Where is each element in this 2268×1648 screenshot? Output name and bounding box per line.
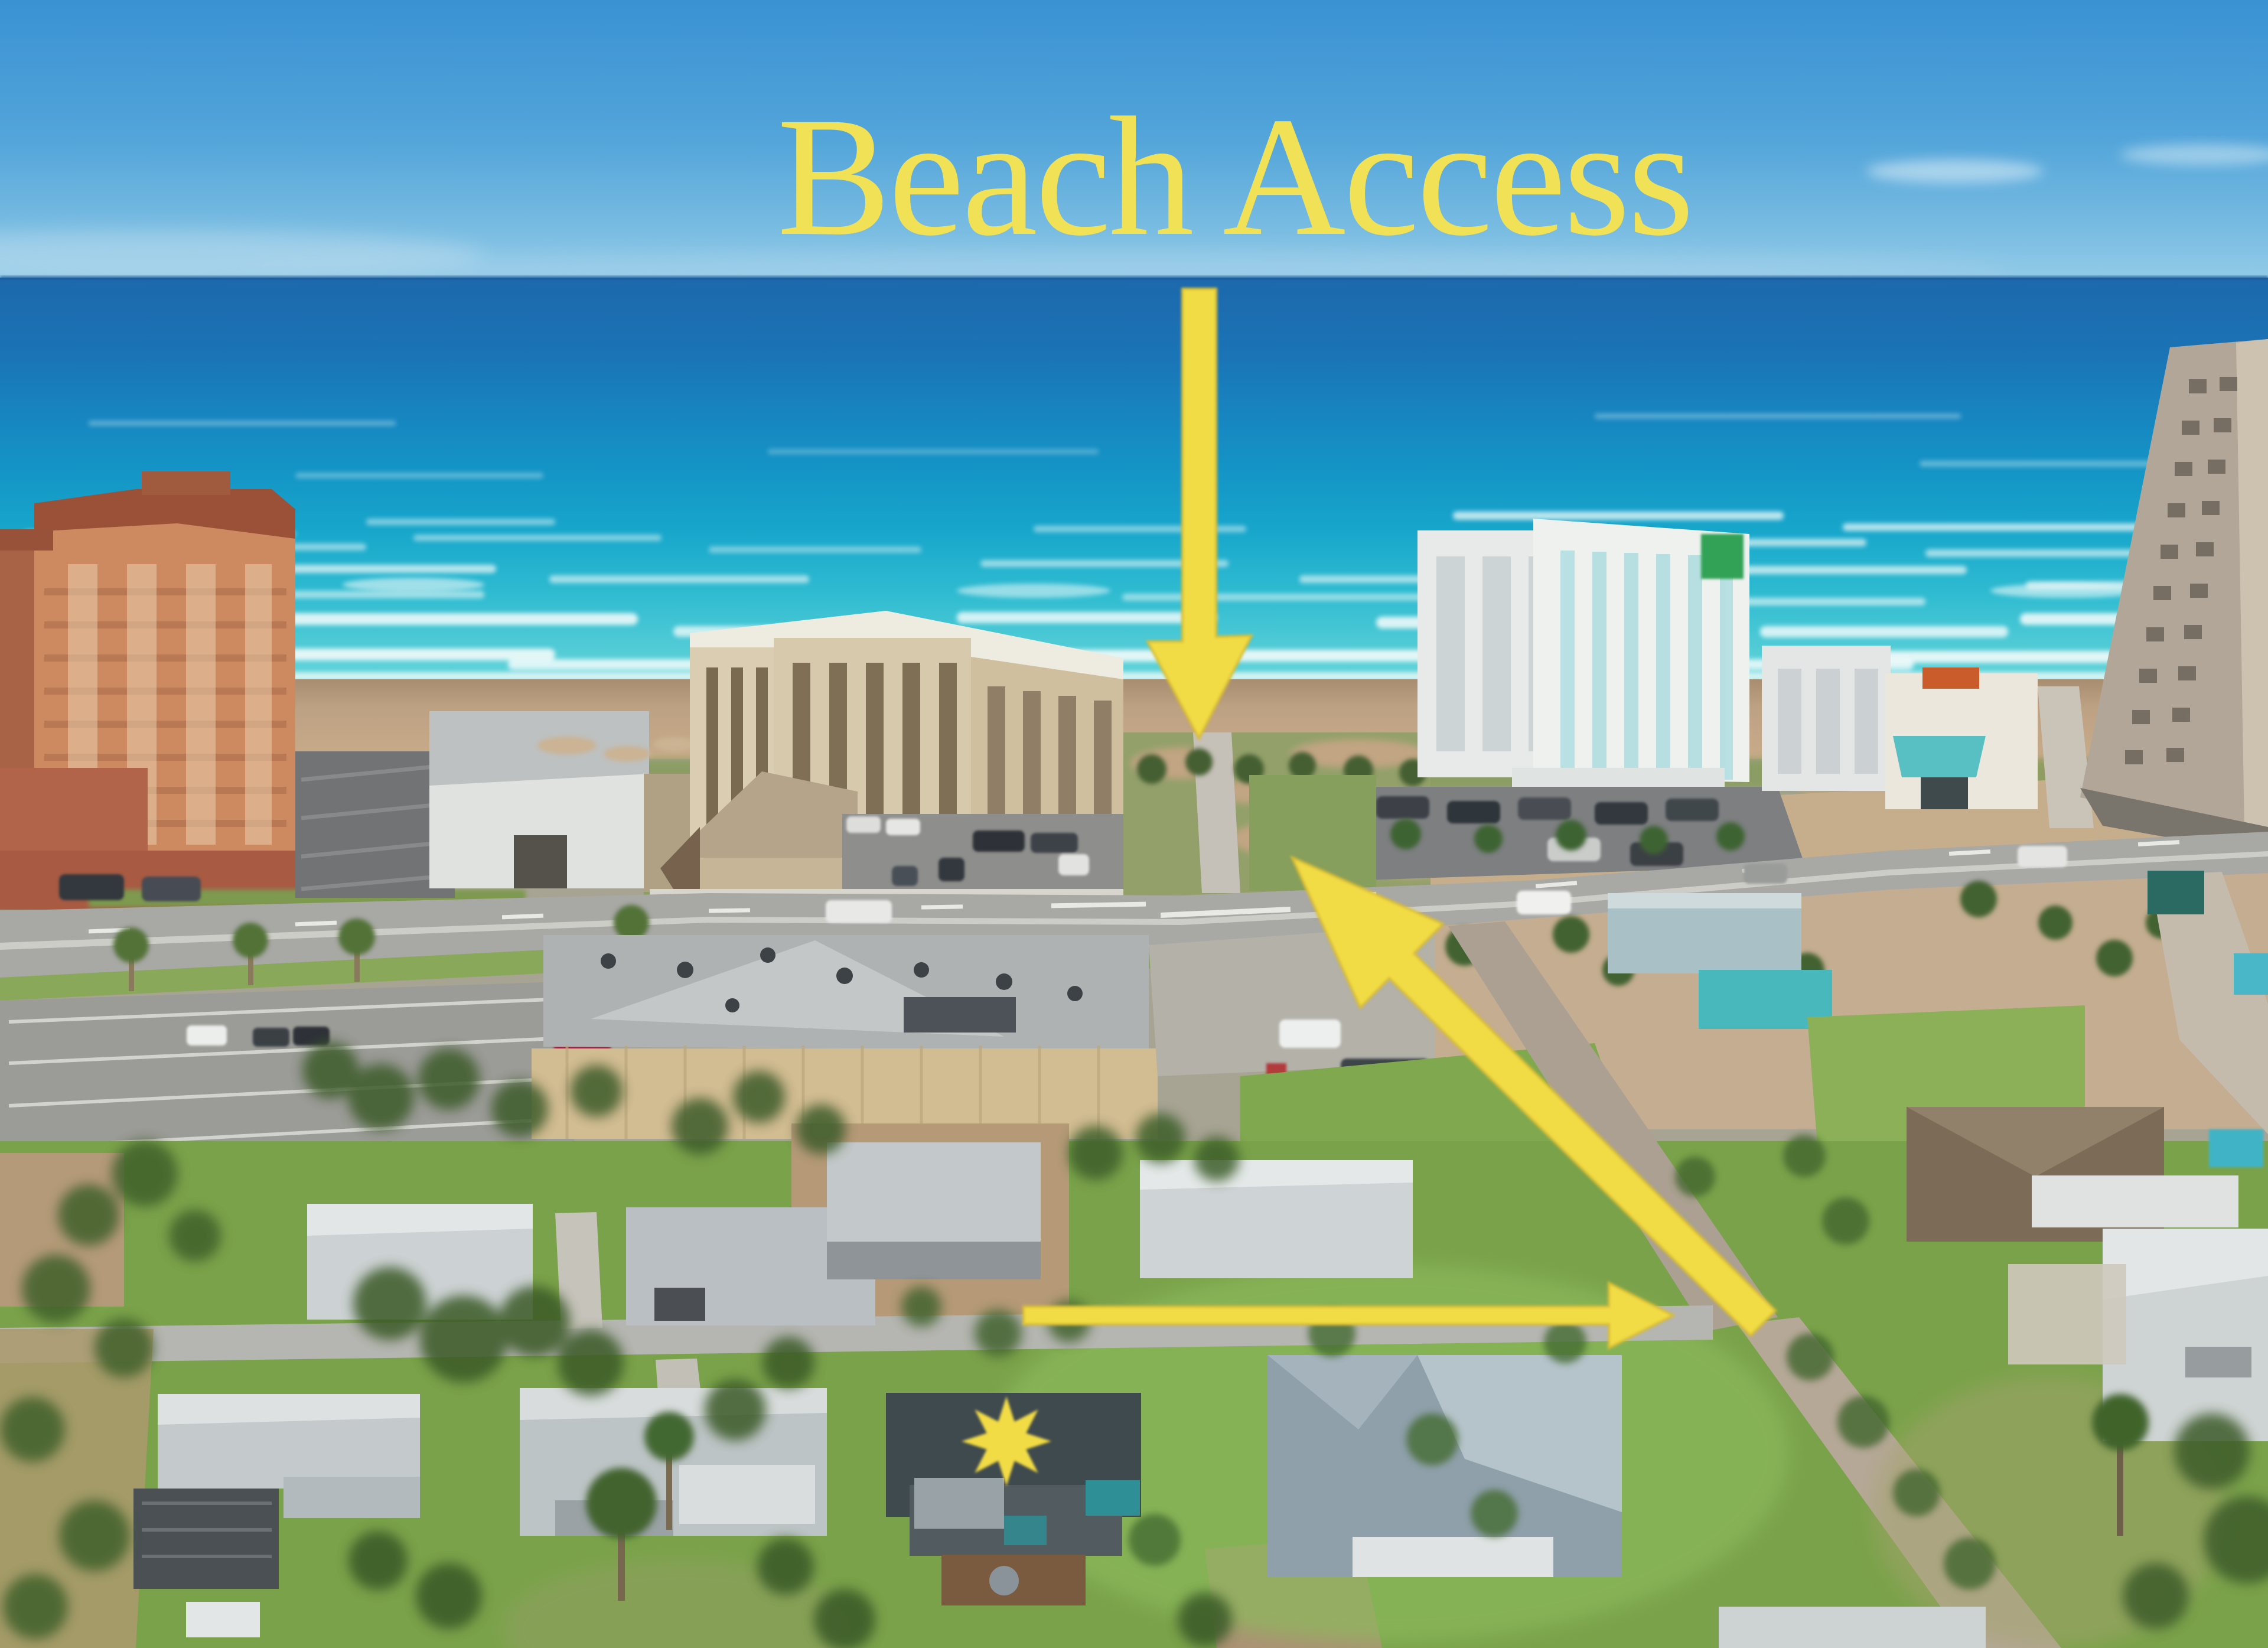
svg-text:Beach Access: Beach Access xyxy=(777,82,1692,271)
